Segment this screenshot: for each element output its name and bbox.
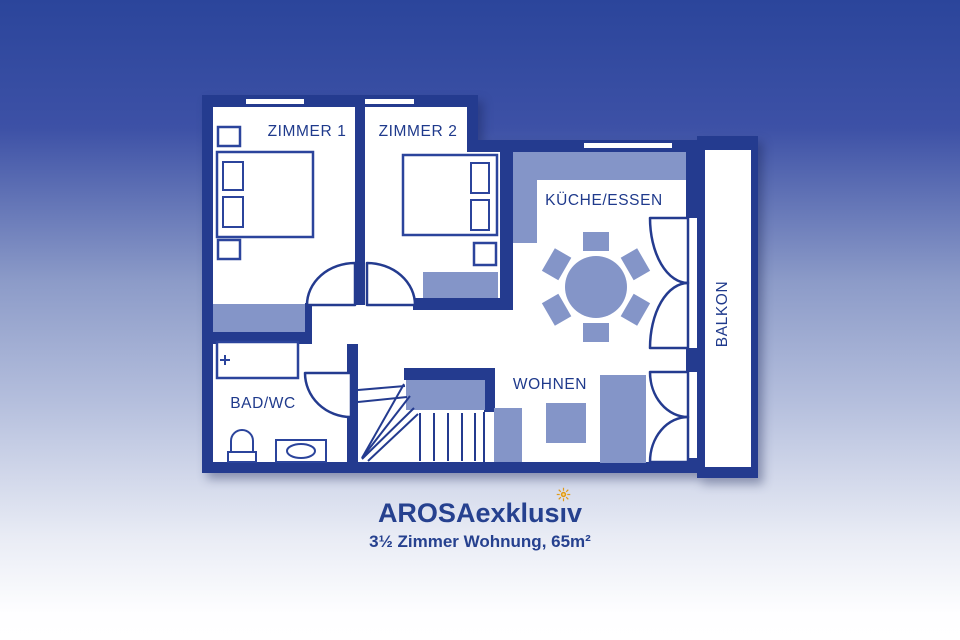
room-label-kueche: KÜCHE/ESSEN	[545, 191, 663, 209]
brand-title-post: v	[567, 498, 582, 528]
sofa	[600, 375, 646, 463]
coffee-table	[546, 403, 586, 443]
pillow	[223, 162, 243, 190]
toilet	[228, 430, 256, 462]
brand-subtitle: 3½ Zimmer Wohnung, 65m²	[0, 532, 960, 552]
window-zimmer1	[246, 99, 304, 104]
room-label-zimmer1: ZIMMER 1	[268, 123, 347, 140]
window-kueche	[584, 143, 672, 148]
room-label-bad: BAD/WC	[230, 395, 296, 412]
wardrobe-zimmer1	[213, 304, 305, 332]
pillow	[223, 197, 243, 227]
sink	[276, 440, 326, 462]
staircase	[358, 380, 485, 462]
page-background: ZIMMER 1 ZIMMER 2 KÜCHE/ESSEN WOHNEN BAD…	[0, 0, 960, 640]
sideboard	[494, 408, 522, 462]
pillow	[471, 200, 489, 230]
pillow	[471, 163, 489, 193]
stair-landing	[406, 380, 485, 410]
wardrobe-zimmer2	[423, 272, 498, 298]
room-label-zimmer2: ZIMMER 2	[379, 123, 458, 140]
chair	[583, 232, 609, 251]
branding: AROSAexklusıv 3½ Zimmer Wohnung, 65m²	[0, 499, 960, 552]
brand-title-i: ı	[560, 498, 568, 528]
nightstand	[218, 240, 240, 259]
nightstand	[474, 243, 496, 265]
room-label-wohnen: WOHNEN	[513, 376, 587, 393]
table-top	[565, 256, 627, 318]
brand-logo: AROSAexklusıv	[0, 499, 960, 529]
chair	[583, 323, 609, 342]
nightstand	[218, 127, 240, 146]
brand-title-pre: AROSAexklus	[378, 498, 560, 528]
room-label-balkon: BALKON	[714, 281, 731, 348]
sun-icon	[556, 487, 571, 502]
